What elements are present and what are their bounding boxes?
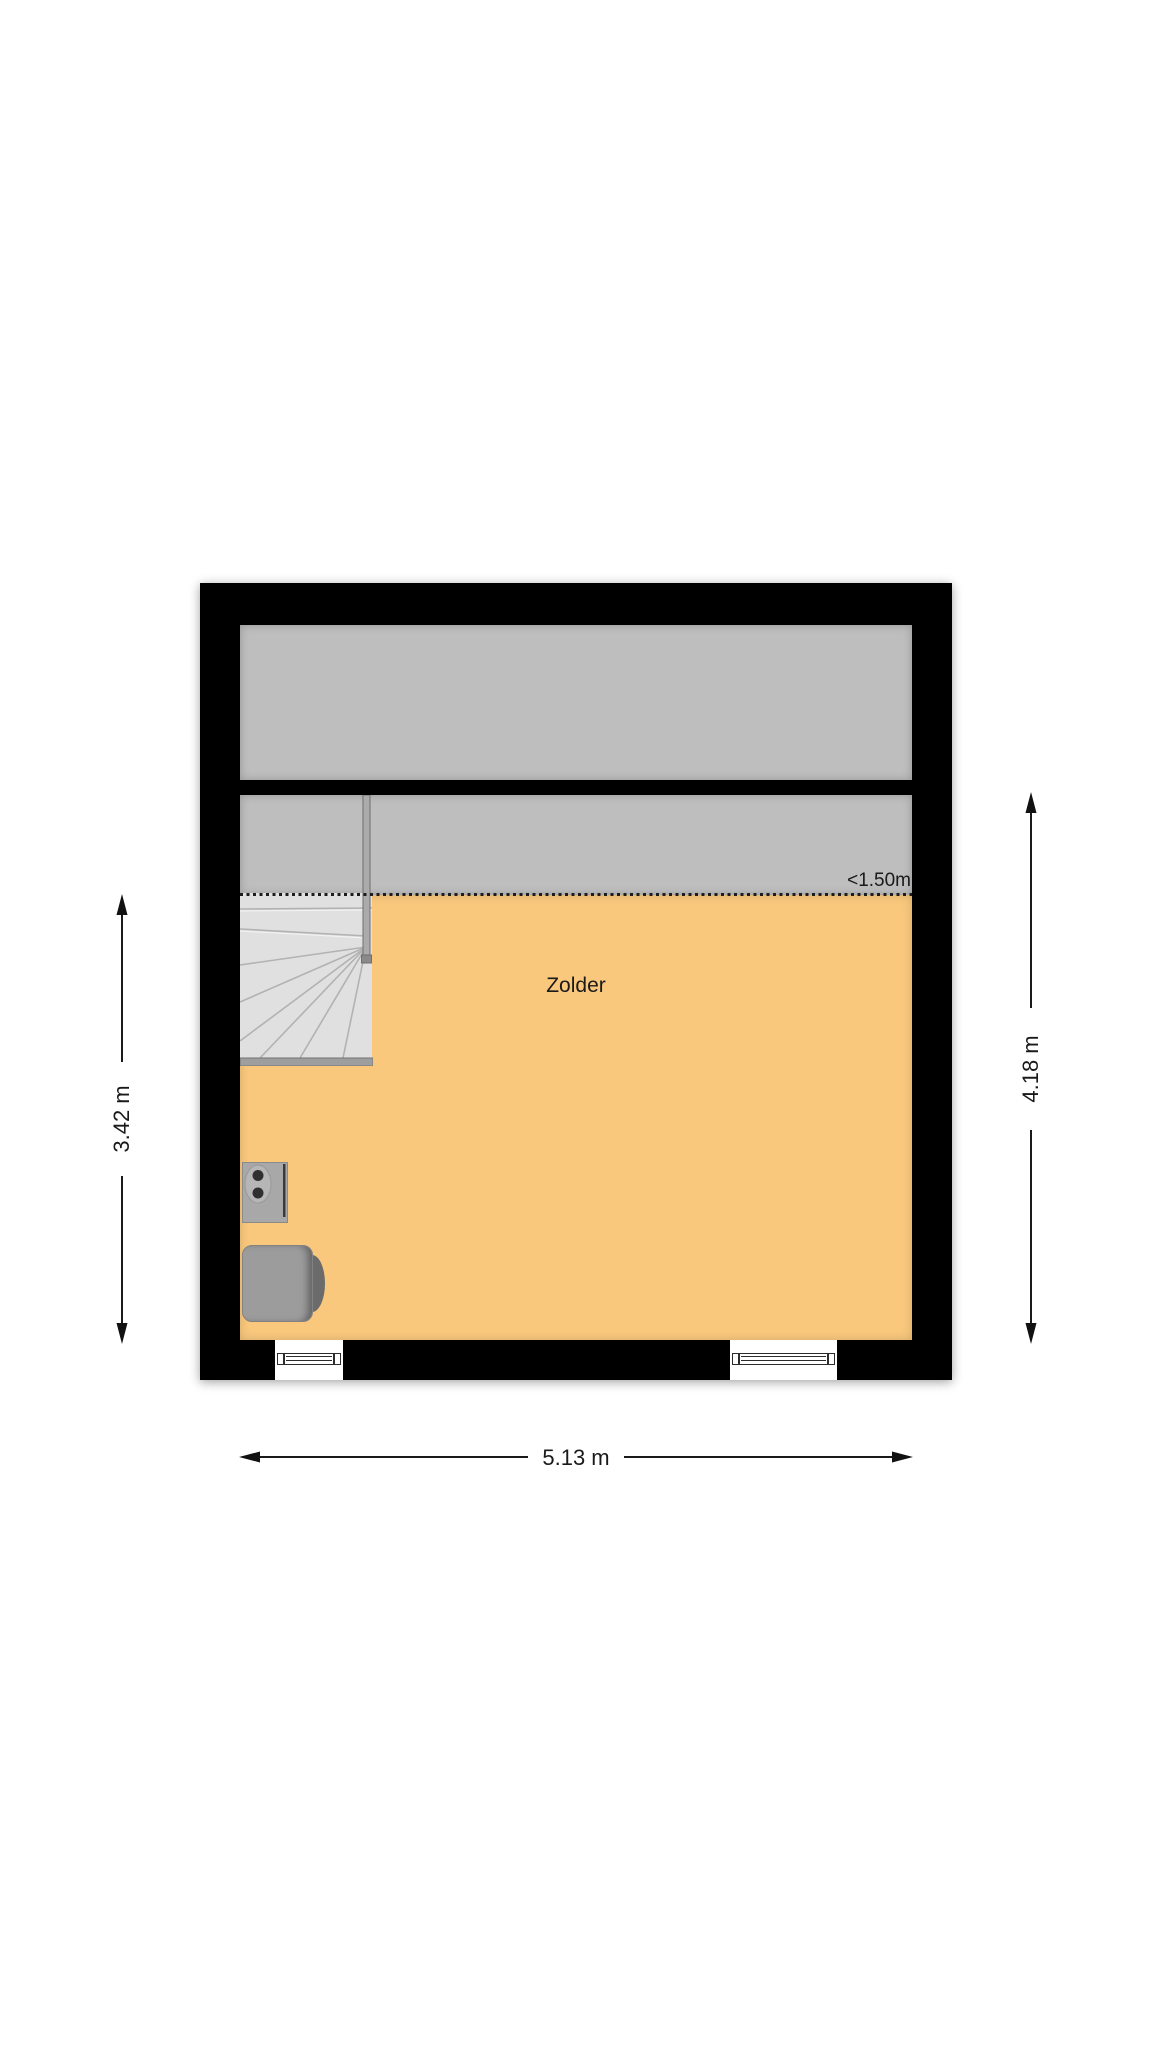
window-post <box>283 1354 285 1364</box>
window-left <box>275 1340 343 1380</box>
room-label: Zolder <box>240 973 912 999</box>
arrow-up-icon <box>117 894 128 915</box>
arrow-down-icon <box>117 1323 128 1344</box>
stair-bottom-rail <box>240 1058 373 1066</box>
arrow-right-icon <box>892 1452 913 1463</box>
window-left-frame <box>277 1353 341 1365</box>
window-right <box>730 1340 837 1380</box>
floorplan-canvas: <1.50m Zolder <box>0 0 1152 2048</box>
arrow-up-icon <box>1026 792 1037 813</box>
room-low-headroom-top <box>240 625 912 780</box>
ventilation-unit-symbol <box>243 1163 287 1222</box>
stair-handrail <box>363 795 370 956</box>
window-post <box>333 1354 335 1364</box>
stair-handrail-cap <box>362 955 372 963</box>
arrow-left-icon <box>239 1452 260 1463</box>
interior-wall <box>240 780 912 795</box>
window-post <box>827 1354 829 1364</box>
dimension-label-left: 3.42 m <box>109 1049 135 1189</box>
dimension-label-bottom: 5.13 m <box>506 1445 646 1471</box>
boiler-body <box>242 1245 313 1322</box>
headroom-boundary-dotted-line <box>240 893 912 896</box>
room-zolder-area: <1.50m Zolder <box>240 795 912 1340</box>
floorplan-outer-walls: <1.50m Zolder <box>200 583 952 1380</box>
ventilation-unit <box>242 1162 288 1223</box>
window-post <box>738 1354 740 1364</box>
window-glass-lines <box>286 1356 332 1361</box>
window-right-frame <box>732 1353 835 1365</box>
dimension-label-right: 4.18 m <box>1018 999 1044 1139</box>
staircase <box>240 795 373 1066</box>
window-glass-lines <box>741 1356 826 1361</box>
arrow-down-icon <box>1026 1323 1037 1344</box>
headroom-label: <1.50m <box>847 869 911 893</box>
boiler-unit <box>242 1245 313 1322</box>
